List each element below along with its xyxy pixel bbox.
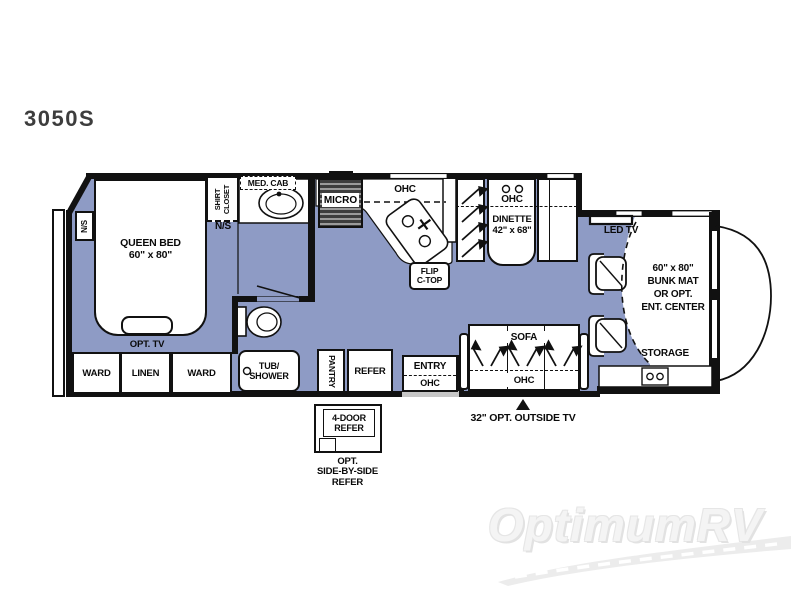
rear-cap: [53, 210, 64, 396]
nightstand-left: N/S: [75, 211, 94, 241]
entry-door-area: ENTRY OHC: [402, 355, 458, 392]
opt-tv-icon: [121, 316, 173, 335]
microwave-range: MICRO: [318, 178, 363, 228]
outside-tv-marker: [516, 399, 530, 410]
cab-seat-passenger: [589, 316, 626, 356]
front-storage-compartment: [599, 366, 712, 387]
four-door-refer: 4-DOOR REFER: [314, 404, 382, 453]
kitchen-ohc-label: OHC: [384, 183, 426, 195]
four-door-refer-label: 4-DOOR REFER: [323, 409, 375, 437]
nightstand-right-label: N/S: [204, 220, 242, 232]
watermark-logo: OptimumRV: [488, 498, 763, 552]
refer-detail-box: [319, 438, 336, 453]
front-cap-curve: [716, 226, 771, 381]
led-tv-label: LED TV: [596, 224, 646, 236]
refrigerator: REFER: [347, 349, 393, 393]
dinette-bench-right: [537, 178, 578, 262]
dinette-ohc-label: OHC: [491, 194, 533, 205]
sofa-ohc-label: OHC: [504, 373, 544, 387]
shirt-closet: SHIRT CLOSET: [206, 176, 239, 222]
linen-cabinet: LINEN: [120, 352, 171, 394]
dinette-ohc-dashed-line: [456, 206, 577, 207]
sofa-label: SOFA: [500, 331, 548, 343]
nightstand-left-label: N/S: [79, 220, 90, 233]
dinette-slide-wall: [443, 176, 456, 242]
led-tv-icon: [590, 216, 632, 224]
wardrobe-left: WARD: [72, 352, 121, 394]
tub-shower: TUB/ SHOWER: [238, 350, 300, 392]
sofa-armrest-right: [579, 333, 589, 390]
dinette-label: DINETTE 42" x 68": [483, 213, 541, 237]
storage-label: STORAGE: [637, 347, 693, 359]
queen-bed-label: QUEEN BED 60" x 80": [94, 236, 207, 262]
flip-countertop: FLIP C-TOP: [409, 262, 450, 290]
floorplan-canvas: 3050S: [0, 0, 800, 600]
entry-ohc-label: OHC: [404, 377, 456, 389]
outside-tv-label: 32" OPT. OUTSIDE TV: [460, 412, 586, 424]
sofa: SOFA OHC: [468, 324, 580, 391]
entry-ohc-dashed-line: [404, 375, 456, 376]
entry-label: ENTRY: [404, 359, 456, 373]
opt-tv-label: OPT. TV: [118, 339, 176, 350]
cab-seat-driver: [589, 254, 626, 294]
microwave-label: MICRO: [322, 193, 359, 207]
bunk-mat-label: 60" x 80" BUNK MAT OR OPT. ENT. CENTER: [630, 260, 716, 316]
bench-seat-line: [549, 180, 550, 260]
page-title: 3050S: [24, 106, 95, 132]
dinette-bench-left: [456, 178, 485, 262]
toilet-icon: [236, 307, 281, 337]
wardrobe-right: WARD: [171, 352, 232, 394]
side-by-side-refer-label: OPT. SIDE-BY-SIDE REFER: [300, 456, 395, 489]
med-cab-label: MED. CAB: [240, 176, 296, 190]
sofa-ohc-dashed-line: [470, 370, 578, 371]
pantry: PANTRY: [317, 349, 345, 393]
